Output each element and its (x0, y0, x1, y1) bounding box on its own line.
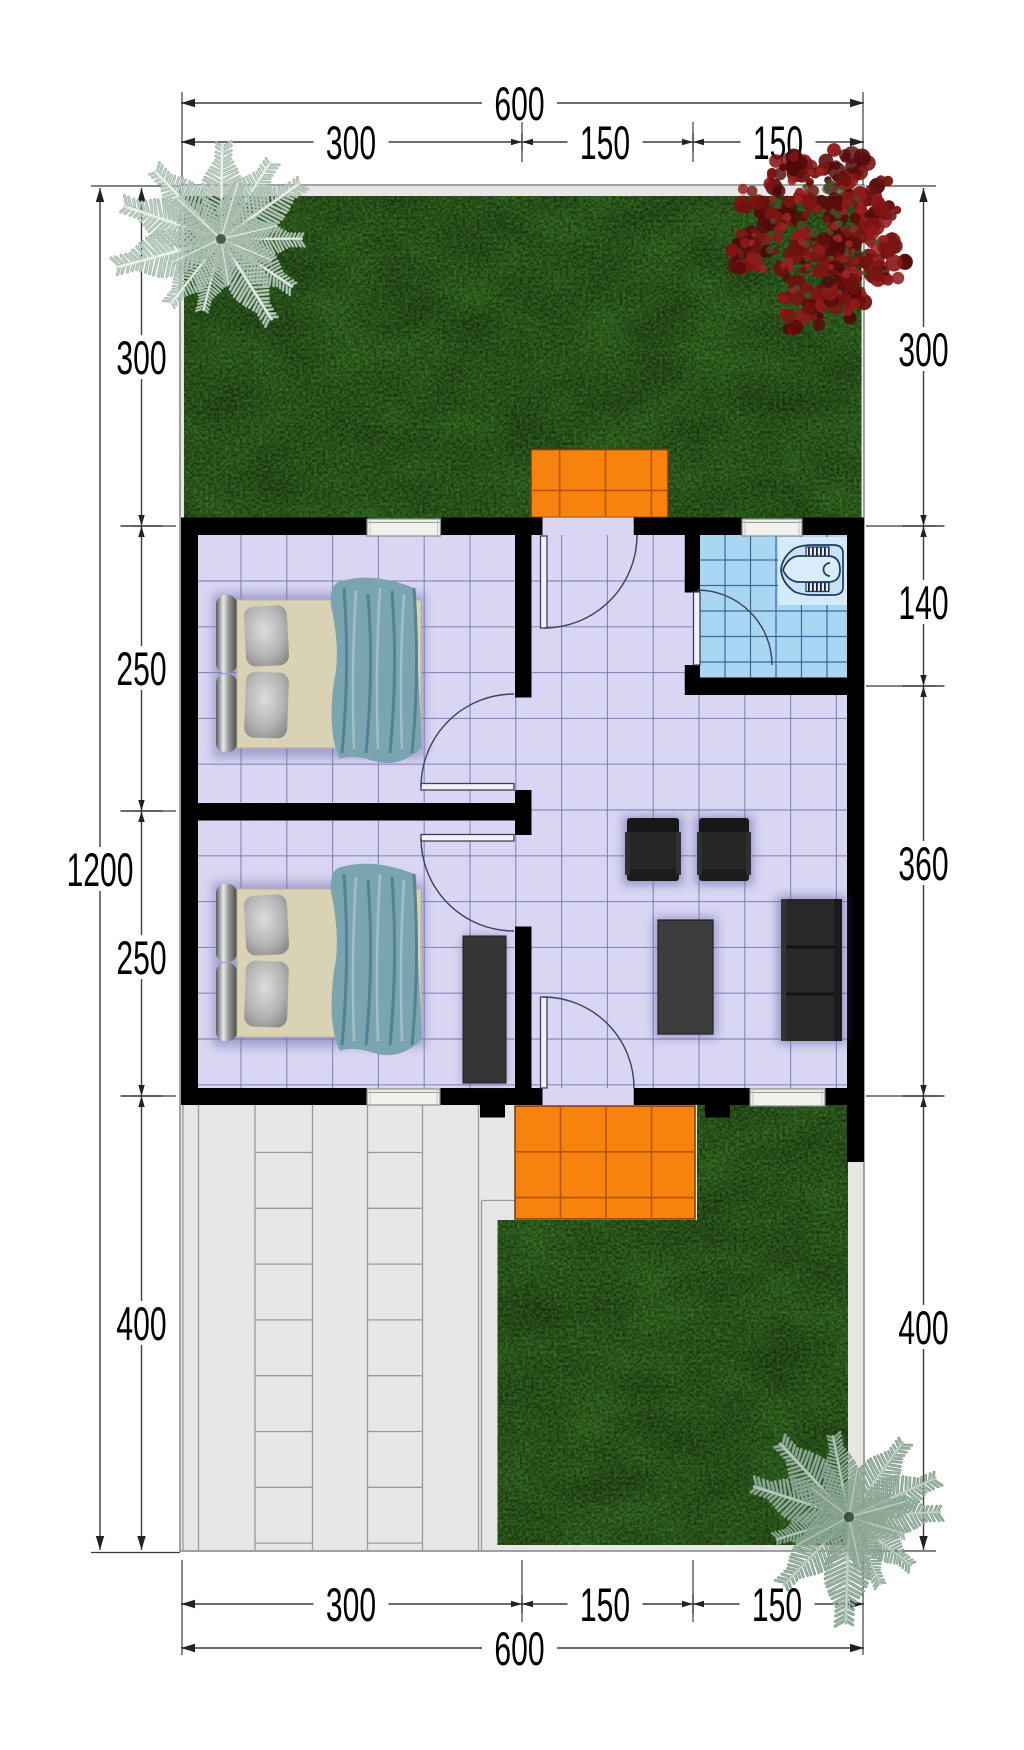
svg-text:300: 300 (326, 1579, 376, 1631)
svg-text:300: 300 (116, 332, 166, 384)
svg-text:600: 600 (494, 78, 544, 130)
svg-text:400: 400 (116, 1298, 166, 1350)
svg-text:140: 140 (898, 577, 948, 629)
svg-text:400: 400 (898, 1302, 948, 1354)
svg-text:360: 360 (898, 838, 948, 890)
svg-text:150: 150 (580, 117, 630, 169)
svg-text:150: 150 (580, 1579, 630, 1631)
svg-text:250: 250 (116, 643, 166, 695)
svg-text:300: 300 (898, 324, 948, 376)
svg-text:250: 250 (116, 932, 166, 984)
svg-text:150: 150 (752, 1579, 802, 1631)
svg-text:300: 300 (326, 117, 376, 169)
svg-text:1200: 1200 (67, 844, 134, 896)
svg-text:600: 600 (494, 1623, 544, 1675)
